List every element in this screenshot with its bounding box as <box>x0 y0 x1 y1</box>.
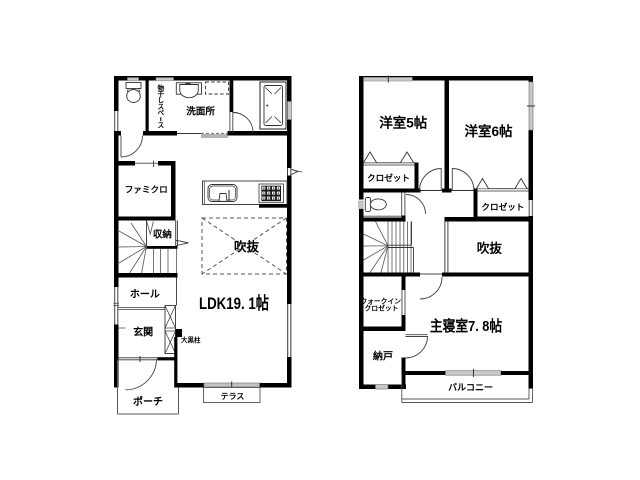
svg-text:収納: 収納 <box>153 229 172 241</box>
svg-text:ファミクロ: ファミクロ <box>125 185 168 195</box>
svg-text:ポーチ: ポーチ <box>133 395 163 408</box>
svg-text:洋室5帖: 洋室5帖 <box>379 115 428 131</box>
svg-text:テラス: テラス <box>221 392 245 401</box>
svg-text:クロゼット: クロゼット <box>367 172 410 183</box>
svg-text:ペ: ペ <box>158 109 165 117</box>
svg-text:ウォークイン: ウォークイン <box>360 297 401 306</box>
svg-text:洋室6帖: 洋室6帖 <box>464 123 513 139</box>
svg-text:ス: ス <box>158 122 165 130</box>
svg-text:納戸: 納戸 <box>373 350 393 363</box>
svg-text:主寝室7. 8帖: 主寝室7. 8帖 <box>430 317 502 334</box>
svg-text:LDK19. 1帖: LDK19. 1帖 <box>199 293 269 313</box>
svg-text:吹抜: 吹抜 <box>477 241 503 256</box>
svg-text:クロゼット: クロゼット <box>365 304 399 313</box>
svg-text:クロゼット: クロゼット <box>481 201 524 212</box>
svg-text:大黒柱: 大黒柱 <box>181 335 201 344</box>
svg-text:吹抜: 吹抜 <box>234 239 260 254</box>
svg-text:バルコニー: バルコニー <box>448 383 493 393</box>
svg-text:玄関: 玄関 <box>133 326 153 339</box>
svg-text:ホール: ホール <box>130 288 160 300</box>
svg-text:洗面所: 洗面所 <box>186 106 215 118</box>
